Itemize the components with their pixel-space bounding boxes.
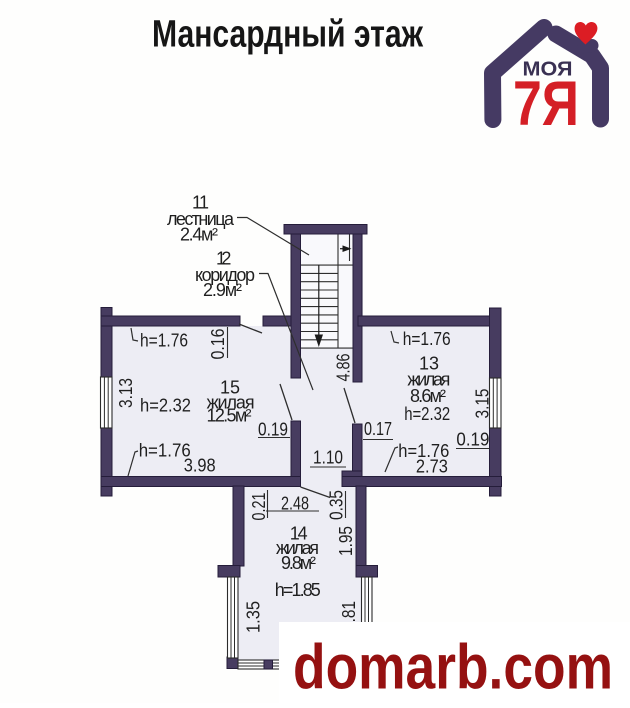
svg-text:0.21: 0.21: [249, 493, 269, 521]
svg-text:0.17: 0.17: [364, 419, 392, 439]
svg-text:0.19: 0.19: [258, 420, 288, 440]
svg-text:Мансардный этаж: Мансардный этаж: [152, 14, 424, 56]
svg-text:0.19: 0.19: [456, 429, 489, 449]
svg-text:1.95: 1.95: [336, 526, 356, 556]
svg-text:1.10: 1.10: [313, 448, 343, 468]
svg-text:h=2.32: h=2.32: [404, 404, 450, 424]
svg-text:h=1.85: h=1.85: [275, 580, 321, 600]
svg-text:h=1.76: h=1.76: [403, 329, 451, 349]
svg-text:4.86: 4.86: [334, 354, 354, 382]
svg-text:2.73: 2.73: [416, 456, 448, 476]
svg-text:2.9м²: 2.9м²: [203, 280, 242, 300]
svg-text:3.13: 3.13: [116, 378, 136, 408]
svg-text:1.35: 1.35: [244, 601, 264, 633]
svg-text:domarb.com: domarb.com: [293, 633, 613, 703]
svg-text:8.6м²: 8.6м²: [410, 386, 446, 406]
svg-text:0.35: 0.35: [327, 490, 347, 520]
svg-text:12.5м²: 12.5м²: [207, 406, 252, 426]
svg-text:9.8м²: 9.8м²: [281, 553, 316, 573]
svg-text:3.98: 3.98: [184, 456, 216, 476]
svg-text:0.16: 0.16: [208, 329, 228, 360]
svg-text:h=2.32: h=2.32: [140, 395, 191, 415]
svg-text:h=1.76: h=1.76: [140, 330, 188, 350]
svg-text:2.4м²: 2.4м²: [180, 224, 218, 244]
svg-text:7Я: 7Я: [513, 69, 579, 139]
svg-text:3.15: 3.15: [473, 389, 493, 419]
